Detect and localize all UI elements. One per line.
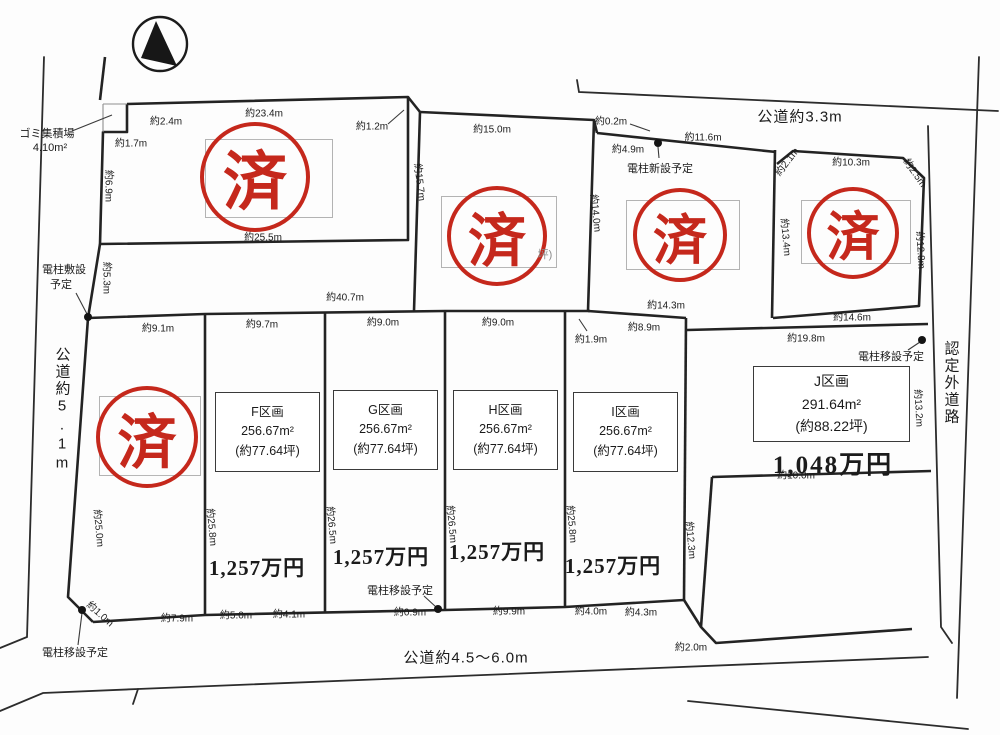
note-garbage-station: ゴミ集積場 [20,125,75,141]
dimension-label: 約25.8m [204,508,222,547]
price-h: 1,257万円 [449,536,545,566]
dimension-label: 約14.6m [833,309,871,324]
dimension-label: 約25.8m [564,505,582,544]
dimension-label: 約4.1m [273,606,305,621]
plot-map-canvas: F区画256.67m²(約77.64坪)G区画256.67m²(約77.64坪)… [0,0,1000,735]
dimension-label: 約9.7m [246,316,278,331]
note-pole-move-bottom: 電柱移設予定 [367,582,433,598]
dimension-label: 約13.2m [912,389,929,428]
dimension-label: 約11.6m [684,129,721,144]
dimension-label: 約14.3m [647,297,685,312]
dimension-label: 約40.7m [326,289,364,304]
dimension-label: 約10.0m [777,467,815,482]
plot-info-box: H区画256.67m²(約77.64坪) [453,390,558,470]
utility-pole-dot [434,605,442,613]
road-label-left: 公道約5.1m [52,347,73,474]
dimension-label: 約1.7m [115,135,147,150]
dimension-label: 約9.1m [142,320,174,335]
dimension-label: 約9.0m [482,314,514,329]
note-pole-move-right: 電柱移設予定 [858,348,924,364]
dimension-label: 約4.0m [575,603,607,618]
dimension-label: 約2.0m [675,639,707,654]
dimension-label: 約19.8m [787,330,825,345]
plot-area-sqm: 256.67m² [574,422,677,441]
sold-stamp: 済 [633,188,727,282]
plot-area-sqm: 291.64m² [754,393,909,415]
plot-name: F区画 [216,403,319,422]
dimension-label: 約10.3m [832,154,870,169]
utility-pole-dot [918,336,926,344]
plot-info-box: F区画256.67m²(約77.64坪) [215,392,320,472]
plot-info-box: I区画256.67m²(約77.64坪) [573,392,678,472]
dimension-label: 約4.9m [612,141,644,156]
price-f: 1,257万円 [209,552,305,582]
dimension-label: 約12.3m [683,521,701,560]
plot-info-box: G区画256.67m²(約77.64坪) [333,390,438,470]
dimension-label: 約25.5m [244,229,282,244]
sold-stamp: 済 [96,386,198,488]
note-pole-new-top: 電柱新設予定 [627,160,693,176]
road-label-top: 公道約3.3m [757,106,842,127]
dimension-label: 約5.0m [220,607,252,622]
note-pole-plan-left-1: 電柱敷設 [42,261,86,277]
plot-area-tsubo: (約88.22坪) [754,415,909,437]
garbage-station-square [103,104,127,132]
dimension-label: 約4.3m [625,604,657,619]
dimension-label: 約12.8m [914,231,931,270]
dimension-label: 約23.4m [245,105,283,120]
dimension-label: 約9.0m [367,314,399,329]
dimension-label: 約9.9m [493,603,525,618]
plot-area-sqm: 256.67m² [454,420,557,439]
sold-stamp: 済 [200,122,310,232]
plot-name: J区画 [754,370,909,392]
dimension-label: 約13.4m [778,218,796,257]
dimension-label: 約5.3m [101,262,116,294]
plot-info-box: J区画291.64m²(約88.22坪) [753,366,910,442]
dimension-label: 約2.4m [150,113,182,128]
plot-area-tsubo: (約77.64坪) [454,440,557,459]
covered-text-fragment: 坪) [538,246,553,262]
utility-pole-dot [654,139,662,147]
utility-pole-dot [84,313,92,321]
dimension-label: 約26.5m [324,506,342,545]
plot-area-tsubo: (約77.64坪) [334,440,437,459]
dimension-label: 約0.9m [394,604,426,619]
note-pole-plan-left-2: 予定 [50,276,72,292]
north-compass-icon [133,17,187,71]
road-label-bottom: 公道約4.5〜6.0m [403,647,528,668]
plot-name: G区画 [334,401,437,420]
plot-name: H区画 [454,401,557,420]
plot-area-sqm: 256.67m² [216,422,319,441]
dimension-label: 約26.5m [444,505,462,544]
dimension-label: 約6.9m [103,170,118,202]
dimension-label: 約1.9m [575,331,607,346]
dimension-label: 約8.9m [628,319,660,334]
plot-area-sqm: 256.67m² [334,420,437,439]
price-i: 1,257万円 [565,550,661,580]
plot-name: I区画 [574,403,677,422]
dimension-label: 約0.2m [595,113,627,128]
price-g: 1,257万円 [333,541,429,571]
note-garbage-area: 4.10m² [33,142,67,154]
road-label-right: 認定外道路 [941,341,962,426]
sold-stamp: 済 [447,186,547,286]
dimension-label: 約7.9m [161,610,193,625]
plot-area-tsubo: (約77.64坪) [216,442,319,461]
sold-stamp: 済 [807,187,899,279]
dimension-label: 約1.2m [356,118,388,133]
note-pole-move-left: 電柱移設予定 [42,644,108,660]
plot-area-tsubo: (約77.64坪) [574,442,677,461]
dimension-label: 約15.0m [473,121,511,136]
dimension-label: 約25.0m [91,509,109,548]
